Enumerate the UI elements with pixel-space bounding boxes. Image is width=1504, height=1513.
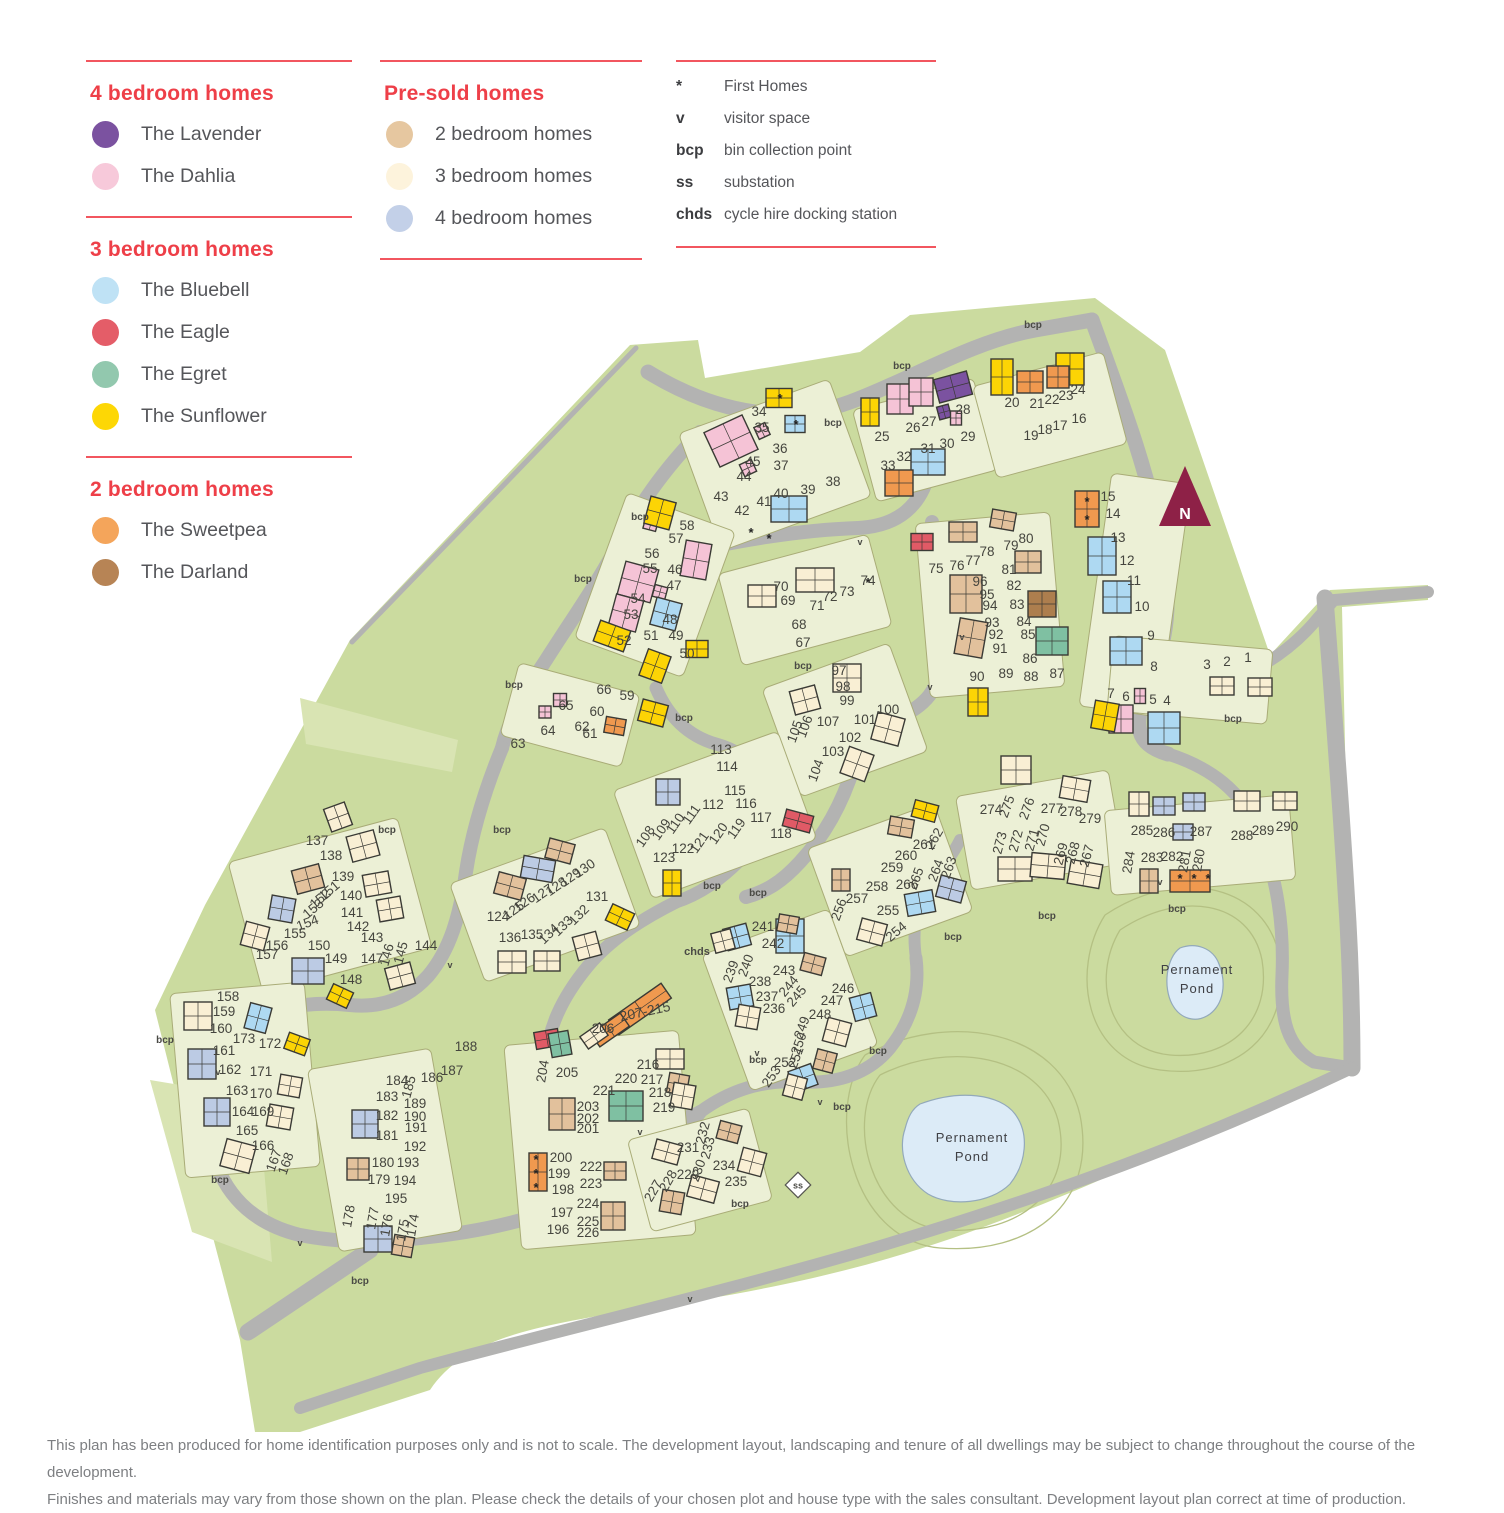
pond-label: Pernament <box>1161 962 1234 977</box>
legend-item-label: 3 bedroom homes <box>435 165 592 188</box>
plot-number: 58 <box>679 518 694 533</box>
legend-item: 4 bedroom homes <box>386 205 642 232</box>
visitor-space-marker: v <box>857 537 862 547</box>
plot-number: 195 <box>385 1191 408 1206</box>
bcp-marker: bcp <box>731 1199 749 1210</box>
house <box>991 359 1013 395</box>
plot-number: 17 <box>1052 418 1067 433</box>
plot-number: 27 <box>921 414 936 429</box>
symbol-label: visitor space <box>724 110 810 128</box>
house <box>748 585 776 607</box>
plot-number: 3 <box>1203 657 1211 672</box>
plot-number: 113 <box>710 742 732 757</box>
plot-number: 10 <box>1134 599 1149 614</box>
legend-item-label: The Egret <box>141 363 227 386</box>
house <box>656 779 680 805</box>
legend-divider <box>676 60 936 62</box>
plot-number: 196 <box>547 1222 570 1237</box>
disclaimer-line-1: This plan has been produced for home ide… <box>47 1432 1457 1486</box>
plot-number: 100 <box>877 702 900 717</box>
legend-color-dot <box>386 205 413 232</box>
plot-number: 77 <box>965 553 980 568</box>
plot-number: 135 <box>521 927 544 942</box>
house <box>572 931 601 960</box>
north-arrow-label: N <box>1179 506 1191 523</box>
plot-number: 19 <box>1023 428 1038 443</box>
bcp-marker: bcp <box>493 825 511 836</box>
plot-number: 36 <box>772 441 787 456</box>
plot-number: 28 <box>955 402 970 417</box>
plot-number: 218 <box>649 1085 672 1100</box>
legend-divider <box>380 60 642 62</box>
plot-number: 13 <box>1110 530 1125 545</box>
plot-number: 26 <box>905 420 920 435</box>
plot-number: 193 <box>397 1155 420 1170</box>
plot-number: 199 <box>548 1166 571 1181</box>
house <box>832 869 850 891</box>
house <box>949 522 977 542</box>
plot-number: 85 <box>1020 627 1035 642</box>
plot-number: 149 <box>325 951 348 966</box>
plot-number: 147 <box>361 951 384 966</box>
plot-number: 158 <box>217 989 240 1004</box>
legend-color-dot <box>386 163 413 190</box>
disclaimer: This plan has been produced for home ide… <box>47 1432 1457 1513</box>
plot-number: 7 <box>1107 686 1115 701</box>
plot-number: 38 <box>825 474 840 489</box>
house <box>885 470 913 496</box>
house <box>737 1147 766 1176</box>
bcp-marker: bcp <box>675 713 693 724</box>
plot-number: 21 <box>1029 396 1044 411</box>
plot-number: 162 <box>219 1062 242 1077</box>
plot-number: 22 <box>1044 392 1059 407</box>
plot-number: 226 <box>577 1225 600 1240</box>
plot-number: 60 <box>589 704 604 719</box>
plot-number: 288 <box>1231 828 1254 843</box>
plot-number: 70 <box>773 579 788 594</box>
plot-number: 4 <box>1163 693 1171 708</box>
symbol-key: * <box>676 78 724 96</box>
symbol-label: First Homes <box>724 78 808 96</box>
plot-number: 76 <box>949 558 964 573</box>
plot-number: 44 <box>736 469 752 484</box>
house <box>1047 366 1069 388</box>
disclaimer-line-2: Finishes and materials may vary from tho… <box>47 1486 1457 1513</box>
house <box>909 378 933 406</box>
house <box>1148 712 1180 744</box>
plot-number: 64 <box>540 723 556 738</box>
legend-item-label: 4 bedroom homes <box>435 207 592 230</box>
plot-number: 221 <box>593 1083 616 1098</box>
plot-number: 48 <box>662 612 677 627</box>
plot-number: 75 <box>928 561 943 576</box>
plot-number: 238 <box>749 974 772 989</box>
legend-house-types: 4 bedroom homesThe LavenderThe Dahlia3 b… <box>86 60 352 601</box>
legend-color-dot <box>92 403 119 430</box>
house <box>1135 689 1146 704</box>
plot-number: 31 <box>920 441 935 456</box>
legend-item: The Bluebell <box>92 277 352 304</box>
plot-number: 140 <box>340 888 363 903</box>
plot-number: 287 <box>1190 824 1213 839</box>
house <box>347 1158 369 1180</box>
plot-number: 165 <box>236 1123 259 1138</box>
plot-number: 200 <box>550 1150 573 1165</box>
plot-number: 258 <box>866 879 889 894</box>
plot-number: 180 <box>372 1155 395 1170</box>
plot-number: 97 <box>831 663 846 678</box>
plot-number: 59 <box>619 688 634 703</box>
plot-number: 15 <box>1100 489 1115 504</box>
house <box>268 895 296 923</box>
plot-number: 30 <box>939 436 954 451</box>
plot-number: 138 <box>320 848 343 863</box>
house <box>1028 591 1056 617</box>
plot-number: 188 <box>455 1039 478 1054</box>
plot-number: 117 <box>750 810 772 825</box>
bcp-marker: bcp <box>351 1276 369 1287</box>
bcp-marker: bcp <box>944 932 962 943</box>
legend-item: 2 bedroom homes <box>386 121 642 148</box>
house <box>937 404 952 420</box>
plot-number: 46 <box>667 562 682 577</box>
bcp-marker: bcp <box>824 418 842 429</box>
visitor-space-marker: v <box>637 1127 642 1137</box>
plot-number: 181 <box>376 1128 399 1143</box>
plot-number: 54 <box>630 591 646 606</box>
plot-number: 1 <box>1244 650 1252 665</box>
house <box>656 1049 684 1069</box>
house <box>777 914 800 934</box>
house <box>534 951 560 971</box>
plot-number: 78 <box>979 544 994 559</box>
plot-number: 20 <box>1004 395 1019 410</box>
plot-number: 183 <box>376 1089 399 1104</box>
plot-number: 8 <box>1150 659 1158 674</box>
plot-number: 143 <box>361 930 384 945</box>
house <box>1015 551 1041 573</box>
plot-number: 86 <box>1022 651 1037 666</box>
plot-number: 255 <box>877 903 900 918</box>
plot-number: 62 <box>574 719 589 734</box>
house <box>659 1189 684 1214</box>
legend-color-dot <box>386 121 413 148</box>
plot-number: 163 <box>226 1083 249 1098</box>
legend-color-dot <box>92 121 119 148</box>
legend-color-dot <box>92 517 119 544</box>
bcp-marker: bcp <box>574 574 592 585</box>
legend-item-label: The Sweetpea <box>141 519 267 542</box>
legend-section-title: 2 bedroom homes <box>90 478 352 502</box>
plot-number: 290 <box>1276 819 1299 834</box>
visitor-space-marker: v <box>297 1238 302 1248</box>
plot-number: 173 <box>233 1031 256 1046</box>
pond-label: Pond <box>1180 981 1214 996</box>
plot-number: 279 <box>1079 811 1102 826</box>
plot-number: 286 <box>1153 825 1176 840</box>
plot-number: 203 <box>577 1099 600 1114</box>
plot-number: 242 <box>762 936 785 951</box>
symbol-row: vvisitor space <box>676 110 936 128</box>
house <box>1140 869 1158 893</box>
plot-number: 285 <box>1131 823 1154 838</box>
plot-number: 247 <box>821 993 844 1008</box>
symbol-label: substation <box>724 174 795 192</box>
house <box>711 929 735 953</box>
plot-number: 39 <box>800 482 815 497</box>
pond-label: Pond <box>955 1149 989 1164</box>
plot-number: 220 <box>615 1071 638 1086</box>
house <box>861 398 879 426</box>
house <box>663 870 681 896</box>
plot-number: 266 <box>896 877 919 892</box>
bcp-marker: bcp <box>631 512 649 523</box>
visitor-space-marker: v <box>959 632 964 642</box>
plot-number: 144 <box>415 938 438 953</box>
plot-number: 150 <box>308 938 331 953</box>
plot-number: 98 <box>835 679 850 694</box>
legend-item-label: The Dahlia <box>141 165 235 188</box>
plot-number: 43 <box>713 489 728 504</box>
legend-section-title: 3 bedroom homes <box>90 238 352 262</box>
legend-section-title: Pre-sold homes <box>384 82 642 106</box>
legend-item: The Darland <box>92 559 352 586</box>
bcp-marker: bcp <box>1038 911 1056 922</box>
plot-number: 82 <box>1006 578 1021 593</box>
house <box>539 706 551 718</box>
plot-number: 95 <box>979 587 994 602</box>
bcp-marker: bcp <box>749 888 767 899</box>
plot-number: 197 <box>551 1205 574 1220</box>
plot-number: 41 <box>756 494 771 509</box>
plot-number: 49 <box>668 628 683 643</box>
symbol-key: chds <box>676 206 724 224</box>
plot-number: 148 <box>340 972 363 987</box>
house <box>813 1049 837 1073</box>
plot-number: 223 <box>580 1176 603 1191</box>
plot-number: 47 <box>666 578 681 593</box>
legend-divider <box>380 258 642 260</box>
plot-number: 282 <box>1161 849 1184 864</box>
plot-number: 74 <box>860 573 876 588</box>
house <box>376 896 403 922</box>
plot-number: 169 <box>252 1104 275 1119</box>
substation-label: ss <box>793 1181 803 1191</box>
house <box>362 871 391 897</box>
house <box>604 716 626 735</box>
plot-number: 2 <box>1223 654 1231 669</box>
legend-divider <box>86 216 352 218</box>
plot-number: 35 <box>754 420 769 435</box>
legend-item-label: The Bluebell <box>141 279 249 302</box>
plot-number: 69 <box>780 593 795 608</box>
plot-number: 50 <box>679 646 694 661</box>
plot-number: 241 <box>752 919 775 934</box>
plot-number: 194 <box>394 1173 417 1188</box>
plot-number: 16 <box>1071 411 1086 426</box>
plot-number: 65 <box>558 698 573 713</box>
legend-item-label: The Sunflower <box>141 405 267 428</box>
legend-color-dot <box>92 559 119 586</box>
plot-number: 11 <box>1127 573 1141 588</box>
bcp-marker: bcp <box>893 361 911 372</box>
plot-number: 205 <box>556 1065 579 1080</box>
plot-number: 67 <box>795 635 810 650</box>
plot-number: 101 <box>854 712 877 727</box>
legend-color-dot <box>92 277 119 304</box>
plot-number: 103 <box>822 744 845 759</box>
plot-number: 91 <box>992 641 1007 656</box>
plot-number: 102 <box>839 730 862 745</box>
plot-number: 34 <box>751 404 767 419</box>
plot-number: 172 <box>259 1036 282 1051</box>
plot-number: 83 <box>1009 597 1024 612</box>
plot-number: 114 <box>716 759 738 774</box>
bcp-marker: bcp <box>156 1035 174 1046</box>
plot-number: 191 <box>405 1120 428 1135</box>
plot-number: 63 <box>510 736 525 751</box>
plot-number: 93 <box>984 615 999 630</box>
plot-number: 32 <box>896 449 911 464</box>
symbol-key: ss <box>676 174 724 192</box>
legend-item-label: The Eagle <box>141 321 230 344</box>
plot-number: 25 <box>874 429 889 444</box>
house <box>911 534 933 551</box>
house <box>1273 792 1297 810</box>
plot-number: 37 <box>773 458 788 473</box>
house <box>204 1098 230 1126</box>
legend-item: The Eagle <box>92 319 352 346</box>
bcp-marker: bcp <box>211 1175 229 1186</box>
bcp-marker: bcp <box>378 825 396 836</box>
house <box>292 958 324 984</box>
house <box>1036 627 1068 655</box>
plot-number: 52 <box>616 633 631 648</box>
plot-number: 45 <box>745 454 760 469</box>
plot-number: 137 <box>306 833 329 848</box>
house <box>1001 756 1031 784</box>
house <box>1234 791 1260 811</box>
pond-label: Pernament <box>936 1130 1009 1145</box>
house <box>520 855 555 882</box>
symbol-label: cycle hire docking station <box>724 206 897 224</box>
plot-number: 56 <box>644 546 659 561</box>
plot-number: 136 <box>499 930 522 945</box>
plot-number: 123 <box>653 850 676 865</box>
legend-section-title: 4 bedroom homes <box>90 82 352 106</box>
bcp-marker: bcp <box>703 881 721 892</box>
plot-number: 6 <box>1122 689 1130 704</box>
plot-number: 99 <box>839 693 854 708</box>
plot-number: 33 <box>880 458 895 473</box>
legend-divider <box>86 60 352 62</box>
plot-number: 24 <box>1070 382 1086 397</box>
plot-number: 42 <box>734 503 749 518</box>
house <box>184 1002 212 1030</box>
plot-number: 187 <box>441 1063 464 1078</box>
legend-divider <box>676 246 936 248</box>
house <box>1091 700 1119 732</box>
legend-item: The Sweetpea <box>92 517 352 544</box>
legend-item-label: The Lavender <box>141 123 261 146</box>
house <box>968 688 988 716</box>
plot-number: 90 <box>969 669 984 684</box>
house <box>1110 637 1142 665</box>
house <box>549 1098 575 1130</box>
plot-number: 237 <box>756 989 779 1004</box>
bcp-marker: bcp <box>1168 904 1186 915</box>
legend-color-dot <box>92 361 119 388</box>
visitor-space-marker: v <box>1157 877 1162 887</box>
plot-number: 170 <box>250 1086 273 1101</box>
plot-number: 171 <box>250 1064 273 1079</box>
bcp-marker: bcp <box>833 1102 851 1113</box>
visitor-space-marker: v <box>817 1097 822 1107</box>
legend-item: The Lavender <box>92 121 352 148</box>
plot-number: 192 <box>404 1139 427 1154</box>
symbol-row: bcpbin collection point <box>676 142 936 160</box>
symbol-row: sssubstation <box>676 174 936 192</box>
symbol-key: bcp <box>676 142 724 160</box>
house <box>1248 678 1272 696</box>
legend-presold: Pre-sold homes2 bedroom homes3 bedroom h… <box>380 60 642 260</box>
house <box>1210 677 1234 695</box>
legend-color-dot <box>92 319 119 346</box>
plot-number: 40 <box>773 486 788 501</box>
house <box>1183 793 1205 811</box>
plot-number: 198 <box>552 1182 575 1197</box>
house <box>352 1110 378 1138</box>
plot-number: 53 <box>623 607 638 622</box>
legend-divider <box>86 456 352 458</box>
plot-number: 51 <box>643 628 658 643</box>
house <box>735 1004 760 1029</box>
plot-number: 29 <box>960 429 975 444</box>
house <box>998 857 1032 881</box>
plot-number: 235 <box>725 1174 748 1189</box>
plot-number: 68 <box>791 617 806 632</box>
plot-number: 224 <box>577 1196 600 1211</box>
plot-number: 234 <box>713 1158 736 1173</box>
plot-number: 206 <box>592 1021 615 1036</box>
legend-item: The Sunflower <box>92 403 352 430</box>
house <box>1017 371 1043 393</box>
plot-number: 96 <box>972 574 987 589</box>
house <box>680 540 712 580</box>
plot-number: 9 <box>1147 628 1155 643</box>
plot-number: 216 <box>637 1057 660 1072</box>
plot-number: 283 <box>1141 850 1164 865</box>
legend-item-label: The Darland <box>141 561 248 584</box>
plot-number: 55 <box>642 561 657 576</box>
bcp-marker: bcp <box>869 1046 887 1057</box>
symbol-row: chdscycle hire docking station <box>676 206 936 224</box>
plot-number: 79 <box>1003 538 1018 553</box>
plot-number: 159 <box>213 1004 236 1019</box>
plot-number: 116 <box>735 796 757 811</box>
house <box>548 1030 572 1057</box>
house <box>601 1202 625 1230</box>
plot-number: 81 <box>1001 562 1016 577</box>
visitor-space-marker: v <box>215 1067 220 1077</box>
legend-item: The Dahlia <box>92 163 352 190</box>
visitor-space-marker: v <box>687 1294 692 1304</box>
visitor-space-marker: v <box>447 960 452 970</box>
legend-item: The Egret <box>92 361 352 388</box>
house <box>1153 797 1175 815</box>
legend-item-label: 2 bedroom homes <box>435 123 592 146</box>
